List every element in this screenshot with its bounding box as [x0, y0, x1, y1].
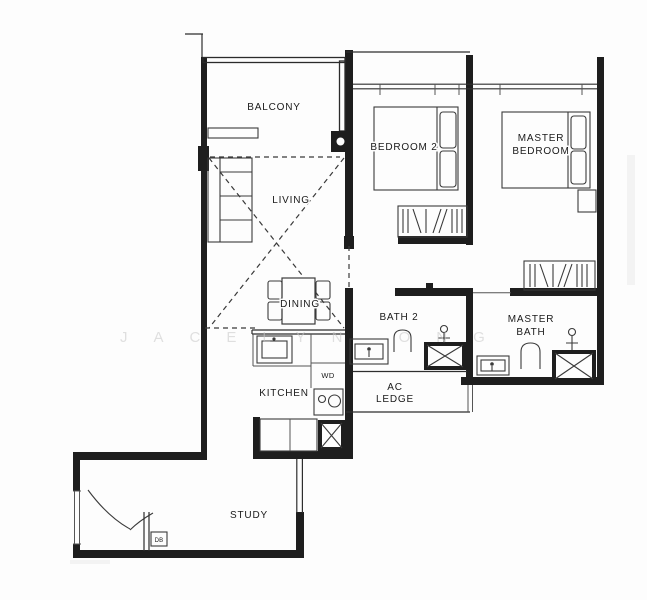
sofa [208, 158, 252, 242]
wall-right-outer [597, 57, 604, 385]
bedroom-window-wall [353, 84, 597, 89]
room-label-bath2: BATH 2 [379, 312, 418, 323]
sofa-cushion-lines [220, 158, 252, 242]
balcony-column-box [331, 131, 350, 152]
master-toilet [521, 343, 540, 369]
room-label-balcony: BALCONY [247, 102, 300, 113]
kitchen-lower-counter [260, 419, 317, 451]
master-wardrobe-hatch [530, 264, 587, 287]
walls [73, 50, 604, 558]
room-label-db: DB [155, 538, 164, 544]
scan-smudge [70, 560, 110, 564]
bedroom2-pillow [440, 151, 456, 187]
entry-door-arc-main [88, 490, 130, 529]
floorplan-drawing: JACELYN ONG BALCONY LIVING DINING BEDROO… [0, 0, 647, 600]
room-label-ac-ledge-line1: AC [387, 382, 403, 393]
dining-chair [316, 281, 330, 299]
boundary-stub [185, 34, 203, 57]
master-mixer-icon [569, 329, 576, 336]
master-mixer-stem [566, 336, 578, 350]
room-label-master-bedroom-line1: MASTER [518, 133, 564, 144]
wall-kitchen-east [345, 288, 353, 458]
master-vanity-basin [481, 360, 505, 371]
room-label-dining: DINING [280, 299, 320, 310]
bath2-door-jamb [426, 283, 433, 289]
watermark-text: JACELYN ONG [120, 329, 511, 346]
master-pillow [571, 151, 586, 184]
living-furniture [208, 128, 258, 242]
master-nightstand [578, 190, 596, 212]
room-label-ac-ledge-line2: LEDGE [376, 394, 414, 405]
stove-burner-large [329, 395, 341, 407]
room-label-study: STUDY [230, 510, 268, 521]
downpipe-icon [336, 137, 345, 146]
wall-study-east [296, 512, 304, 558]
master-pillow [571, 116, 586, 149]
stove-burner-small [319, 396, 326, 403]
room-label-kitchen: KITCHEN [259, 388, 309, 399]
bedroom2-wardrobe-hatch [403, 209, 462, 233]
wall-bath2-top [395, 288, 473, 296]
window-mullion-ticks [380, 84, 582, 95]
room-label-master-bath-line2: BATH [516, 327, 545, 338]
wall-kitchen-bottom [253, 451, 353, 459]
wall-counter-cap [253, 417, 260, 457]
wall-west-pier [198, 146, 209, 171]
bath2-vanity-tap-icon [367, 347, 371, 351]
acledge-east-line [468, 385, 473, 412]
master-vanity [477, 356, 509, 375]
wall-study-bottom [73, 550, 304, 558]
room-label-master-bath-line1: MASTER [508, 314, 554, 325]
room-label-living: LIVING [272, 195, 310, 206]
balcony-planter [208, 128, 258, 138]
room-label-wd: WD [321, 371, 334, 380]
master-vanity-tap-icon [490, 362, 494, 366]
room-label-master-bedroom-line2: BEDROOM [512, 146, 569, 157]
floorplan-page: JACELYN ONG BALCONY LIVING DINING BEDROO… [0, 0, 647, 600]
room-label-bedroom2: BEDROOM 2 [370, 142, 437, 153]
wall-entry-top [73, 452, 207, 460]
dining-chair [268, 281, 282, 299]
balcony-top-wall [203, 58, 345, 63]
scan-smudge [627, 155, 635, 285]
bedroom2-furniture [374, 107, 467, 237]
wall-west-outer [201, 57, 207, 453]
bedroom2-pillow [440, 112, 456, 148]
balcony-right-wall [340, 61, 346, 131]
entry-door-opening [72, 491, 81, 544]
study-window [297, 459, 303, 513]
